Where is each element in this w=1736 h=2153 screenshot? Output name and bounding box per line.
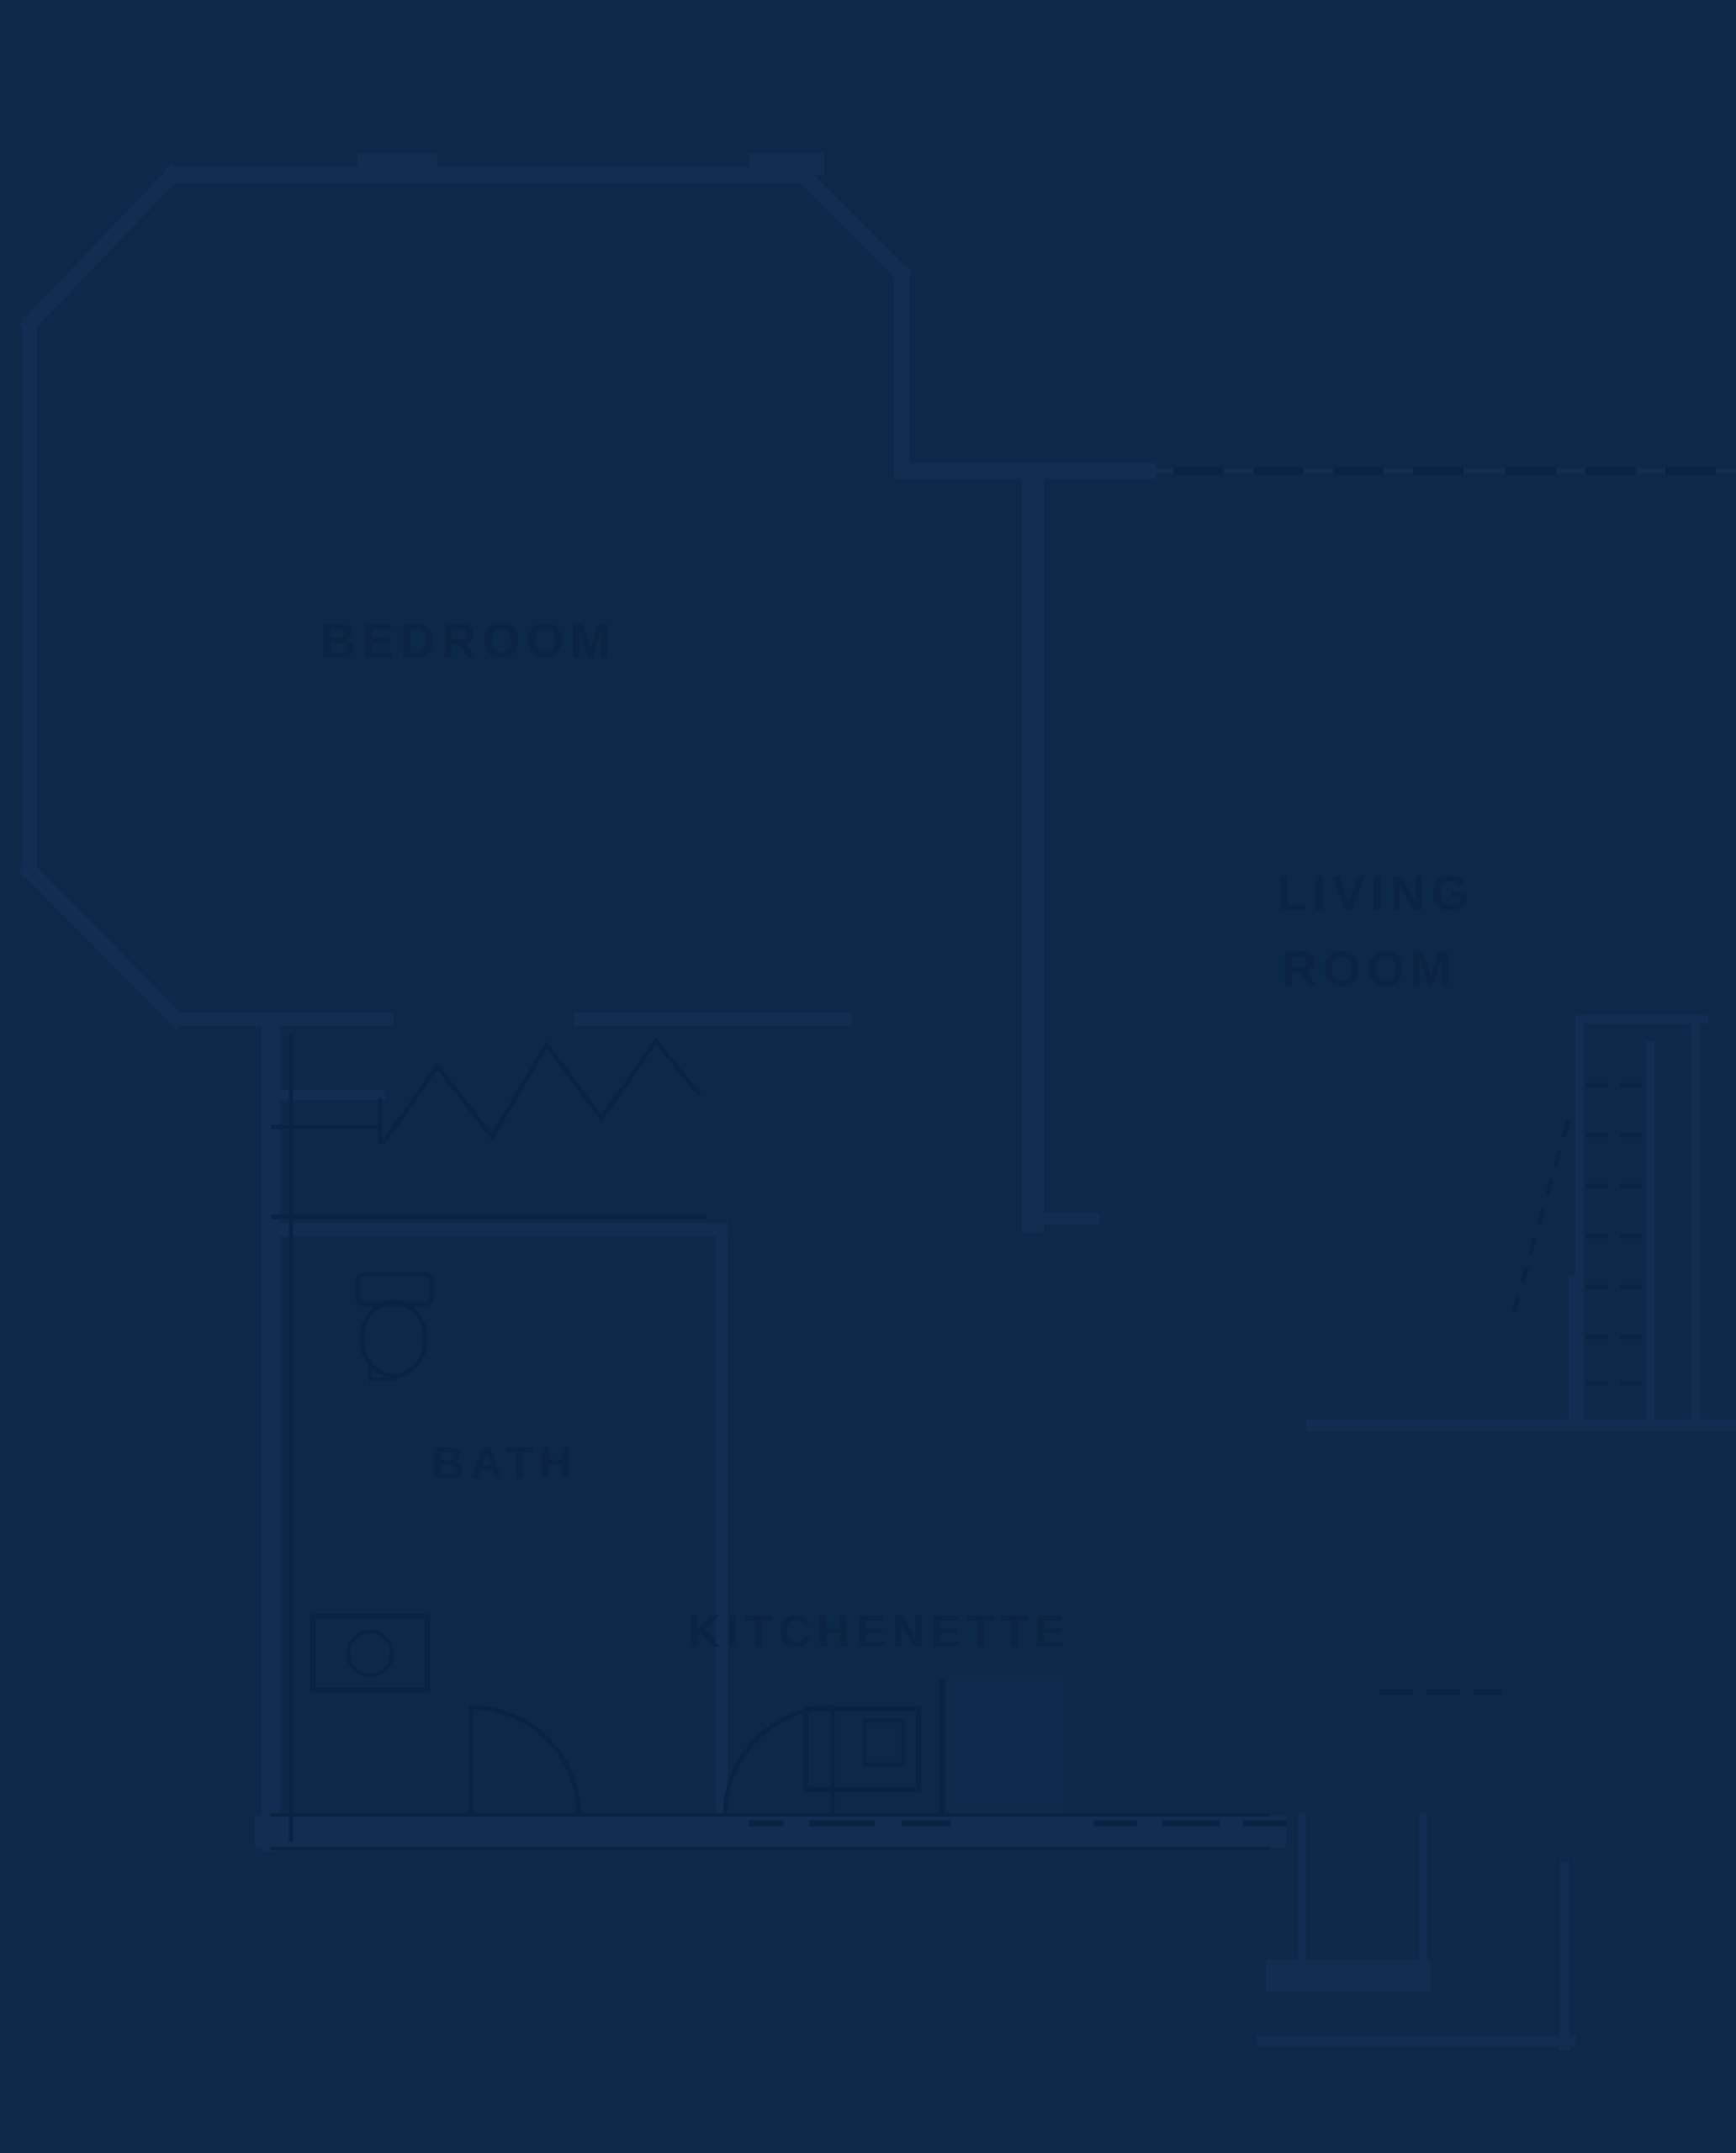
entry-landing-floor: [948, 1675, 1062, 1817]
sink-basin-icon: [348, 1632, 392, 1675]
bedroom-label: BEDROOM: [320, 614, 617, 669]
chimney-notch-right: [749, 153, 824, 175]
wall-layer: [29, 153, 1736, 2045]
kitchenette-label: KITCHENETTE: [688, 1606, 1071, 1657]
bath-label: BATH: [431, 1438, 578, 1489]
oven-burner-icon: [865, 1721, 903, 1764]
chimney-notch-left: [357, 153, 437, 175]
kitchen-door-swing-icon: [725, 1707, 833, 1815]
living-room-label-line1: LIVING: [1277, 866, 1474, 921]
living-room-label-line2: ROOM: [1282, 942, 1457, 997]
bedroom-ne-chamfer-wall: [803, 175, 902, 273]
stair-tread-dashes: [1586, 1085, 1643, 1383]
floor-plan-page: BEDROOM LIVING ROOM BATH KITCHENETTE: [0, 0, 1736, 2153]
stair-break-dashes: [1514, 1110, 1571, 1312]
sink-icon: [313, 1616, 427, 1690]
bedroom-nw-chamfer-wall: [29, 175, 172, 324]
bath-door-swing-icon: [471, 1707, 579, 1815]
fixture-layer: [313, 1041, 918, 1815]
floor-plan-drawing: BEDROOM LIVING ROOM BATH KITCHENETTE: [0, 0, 1736, 2153]
bedroom-sw-chamfer-wall: [29, 870, 177, 1019]
bifold-closet-doors-icon: [383, 1041, 700, 1144]
rear-step-landing: [1266, 1960, 1431, 1992]
